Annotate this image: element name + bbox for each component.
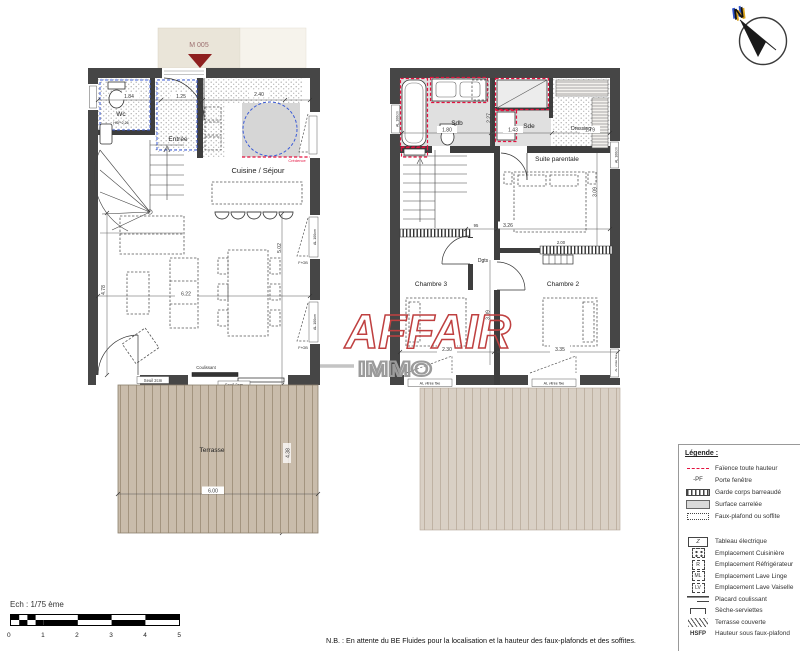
sliding-door-label: Coulissant (196, 365, 216, 370)
window-bottom-left-label: AL vitrée fixe (420, 382, 441, 386)
legend-item-lave-vaisselle: LV Emplacement Lave Vaiselle (685, 582, 800, 594)
legend-item-terrasse-couverte: Terrasse couverte (685, 617, 800, 629)
nb-note: N.B. : En attente du BE Fluides pour la … (326, 636, 636, 645)
refrigerateur-icon: R (692, 560, 705, 570)
dim-gf-top-mid: 1.25 (176, 94, 186, 100)
washbasin-icon (100, 124, 112, 144)
credence-label: Crédence (288, 158, 306, 163)
faux-plafond-icon (687, 513, 709, 520)
surface-carrelee-icon (686, 500, 710, 509)
dim-gf-top-left: 1.84 (124, 94, 134, 100)
cuisiniere-icon (692, 548, 705, 558)
window-left-label: AL 100cm (396, 111, 400, 127)
legend-item-tableau-electrique: Z Tableau électrique (685, 536, 800, 548)
seche-serviettes-icon (690, 608, 706, 614)
floor-plan-sheet: M 005 Crédence (0, 0, 800, 651)
watermark-primary: AFFAIR (344, 306, 511, 359)
room-label-sde: Sde (523, 123, 535, 130)
room-label-wc-height: HSP 2,26 (113, 121, 128, 125)
garde-corps-icon (686, 489, 710, 496)
room-label-suite: Suite parentale (535, 156, 579, 163)
window-right-top-label: AL 100cm (615, 147, 619, 163)
dim-gf-top-right: 2.40 (254, 92, 264, 98)
garde-corps-stairwell (400, 229, 470, 237)
window-fob-top: F+OB (298, 261, 308, 265)
faience-dash-icon (687, 468, 709, 469)
legend-item-placard-coulissant: Placard coulissant (685, 594, 800, 606)
terrasse-couverte-icon (688, 618, 708, 627)
legend-panel: Légende : Faïence toute hauteur -PF Port… (678, 444, 800, 651)
tableau-electrique-icon: Z (688, 537, 708, 547)
lave-linge-icon: ML (692, 571, 705, 581)
wardrobe (556, 80, 608, 96)
window-right-bottom-label: AL 100cm (313, 314, 317, 330)
room-label-cuisine-sejour: Cuisine / Séjour (232, 166, 285, 175)
window-fob-bottom: F+OB (298, 346, 308, 350)
window-right-top-label: AL 100cm (313, 229, 317, 245)
room-label-entree: Entrée (168, 136, 188, 143)
room-label-sdb: Sdb (451, 120, 463, 127)
dim-sde-width: 1.43 (508, 128, 518, 134)
hsfp-icon: HSFP (690, 631, 706, 637)
dim-chambre2-width: 3.35 (555, 347, 565, 353)
legend-item-faience: Faïence toute hauteur (685, 462, 800, 474)
legend-item-porte-fenetre: -PF Porte fenêtre (685, 474, 800, 486)
dim-terrasse-width: 6.00 (208, 489, 218, 495)
legend-item-garde-corps: Garde corps barreaudé (685, 486, 800, 498)
bathtub-icon (401, 79, 428, 148)
legend-item-hsfp: HSFP Hauteur sous faux-plafond (685, 628, 800, 640)
legend-item-lave-linge: ML Emplacement Lave Linge (685, 571, 800, 583)
legend-item-seche-serviettes: Sèche-serviettes (685, 605, 800, 617)
dim-gf-width: 6.22 (181, 292, 191, 298)
scale-label: Ech : 1/75 ème (10, 600, 181, 609)
dim-gf-right-height: 5.02 (277, 243, 283, 253)
room-label-degagement: Dgts (478, 258, 489, 264)
room-label-dressing: Dressing (571, 126, 591, 132)
shower-icon (496, 79, 549, 110)
scale-bar-graphic (10, 614, 180, 626)
kitchen-island-tiled-surface (242, 103, 300, 157)
garde-corps-chambre2 (540, 246, 612, 254)
upper-terrasse-roof (420, 388, 620, 530)
room-label-chambre2: Chambre 2 (547, 281, 580, 288)
watermark-secondary: IMMO (358, 358, 432, 381)
scale-ticks: 0 1 2 3 4 5 (7, 632, 181, 639)
scale-bar: Ech : 1/75 ème 0 1 2 3 4 5 (10, 600, 181, 639)
wardrobe (592, 98, 608, 148)
legend-item-faux-plafond: Faux-plafond ou soffite (685, 510, 800, 522)
room-label-chambre3: Chambre 3 (415, 281, 448, 288)
dim-gf-left-height: 4.78 (101, 285, 107, 295)
window-bottom-right-label: AL vitrée fixe (544, 382, 565, 386)
legend-item-cuisiniere: Emplacement Cuisinière (685, 548, 800, 560)
room-label-terrasse: Terrasse (200, 447, 225, 454)
window-right-bottom-label: AL vitrée fixe (614, 354, 618, 372)
legend-item-surface-carrelee: Surface carrelée (685, 498, 800, 510)
legend-item-refrigerateur: R Emplacement Réfrigérateur (685, 559, 800, 571)
dim-sdb-width: 1.80 (442, 128, 452, 134)
sliding-door-panel (192, 373, 238, 377)
double-washbasin-icon (431, 78, 488, 103)
dim-terrasse-height: 4.38 (286, 448, 292, 458)
north-arrow-icon: N N N (729, 2, 786, 64)
dim-suite-depth: 3.09 (593, 187, 599, 197)
lave-vaisselle-icon: LV (692, 583, 705, 593)
radiator-icon (543, 255, 573, 264)
entry-marker-label: M 005 (189, 42, 209, 49)
dim-hall: 95 (474, 223, 479, 228)
placard-coulissant-icon (687, 596, 709, 602)
threshold-left-label: Seuil 2cm (144, 378, 163, 383)
ground-terrasse: Terrasse 6.00 4.38 (116, 385, 320, 533)
dim-suite-width: 3.26 (503, 223, 513, 229)
porte-fenetre-icon: -PF (693, 477, 703, 483)
legend-title: Légende : (685, 450, 800, 457)
room-label-wc: Wc (116, 111, 126, 118)
dim-garde-corps: 2.00 (557, 240, 566, 245)
dim-sdb-depth: 2.27 (487, 113, 493, 123)
